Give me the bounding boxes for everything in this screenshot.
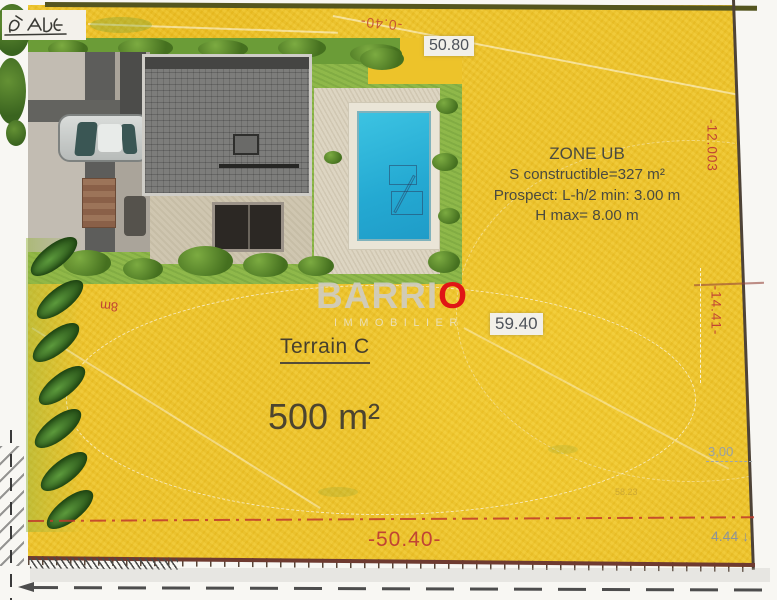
surveyor-marks-box [2,10,86,40]
planter [82,178,116,228]
road-direction-arrow [18,582,34,592]
roof-vent [219,164,299,168]
terrace [150,196,312,264]
car-top-view [58,114,150,162]
measure-faint-ref: 58.23 [615,487,638,497]
bush [436,98,458,114]
bush [298,256,334,276]
road-shoulder [30,568,770,582]
measure-mid-width: 59.40 [490,313,543,335]
terrain-name: Terrain C [280,335,370,364]
window-divider [248,205,250,249]
measure-top-width: 50.80 [424,36,474,56]
bush [432,153,458,171]
roof-ridge [145,57,309,69]
measure-bottom-width: -50.40- [368,528,442,552]
pool-deck [348,102,440,250]
bay-window [212,202,284,252]
car-roof [98,124,122,152]
measure-left-mark: 8m [99,298,118,315]
grass-smudge [548,445,578,454]
margin-hatching [0,446,24,566]
handwritten-marks-icon [2,10,86,40]
bush [123,258,163,280]
measure-right-setback: 3,00 [708,444,733,459]
dashed-offset-line [700,268,701,383]
car-rear-window [120,124,137,154]
brand-watermark: BARRIO [316,277,468,314]
swimming-pool [357,111,431,241]
zone-info: ZONE UB S constructible=327 m² Prospect:… [462,142,712,227]
tree-canopy [360,48,404,70]
terrain-area-label: 500 m² [268,396,380,438]
grass-smudge [318,487,358,497]
brand-subtitle: IMMOBILIER [334,317,464,329]
zone-title: ZONE UB [462,142,712,165]
site-plan: -0.40- 50.80 59.40 -50.40- 4.44 ↓ 3,00 5… [0,0,777,600]
grass-smudge [90,17,152,33]
zone-constructible: S constructible=327 m² [462,165,712,186]
tree-canopy [0,58,26,124]
bush [243,253,288,277]
tree-canopy [6,120,26,146]
skylight [233,134,259,155]
dashed-underline [706,461,752,462]
house-roof [142,54,312,196]
measure-right-mid: -14.41- [709,266,724,356]
garden-shed [124,196,146,236]
brand-prefix: BARRI [316,275,438,316]
bush [324,151,342,164]
car-windshield [74,122,98,156]
measure-bottom-right: 4.44 ↓ [711,528,749,544]
zone-prospect: Prospect: L-h/2 min: 3.00 m [462,186,712,207]
bush [178,246,233,276]
road-axis-dashline [30,586,777,592]
bush [438,208,460,224]
villa-aerial-view [28,38,462,284]
bush [428,251,460,273]
brand-suffix: O [438,275,468,316]
zone-height-max: H max= 8.00 m [462,206,712,227]
